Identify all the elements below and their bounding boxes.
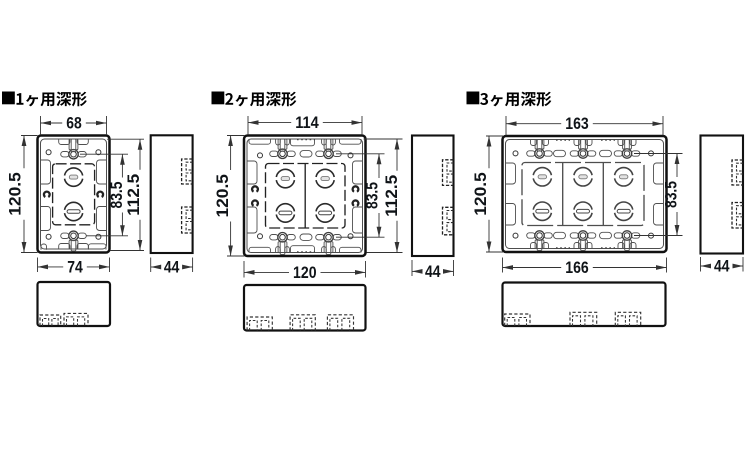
svg-text:114: 114	[295, 113, 319, 132]
svg-text:44: 44	[425, 262, 441, 281]
svg-text:83.5: 83.5	[363, 182, 382, 209]
svg-text:74: 74	[67, 257, 83, 276]
svg-text:120: 120	[293, 263, 317, 282]
svg-text:112.5: 112.5	[382, 175, 401, 217]
svg-text:68: 68	[66, 114, 82, 133]
svg-text:112.5: 112.5	[124, 174, 143, 216]
svg-text:120.5: 120.5	[213, 174, 232, 218]
svg-text:120.5: 120.5	[471, 172, 490, 216]
svg-text:166: 166	[565, 258, 589, 277]
svg-text:120.5: 120.5	[6, 172, 25, 216]
svg-text:44: 44	[164, 258, 180, 277]
svg-text:163: 163	[565, 114, 589, 133]
svg-text:44: 44	[714, 257, 730, 276]
svg-text:83.5: 83.5	[662, 181, 681, 208]
